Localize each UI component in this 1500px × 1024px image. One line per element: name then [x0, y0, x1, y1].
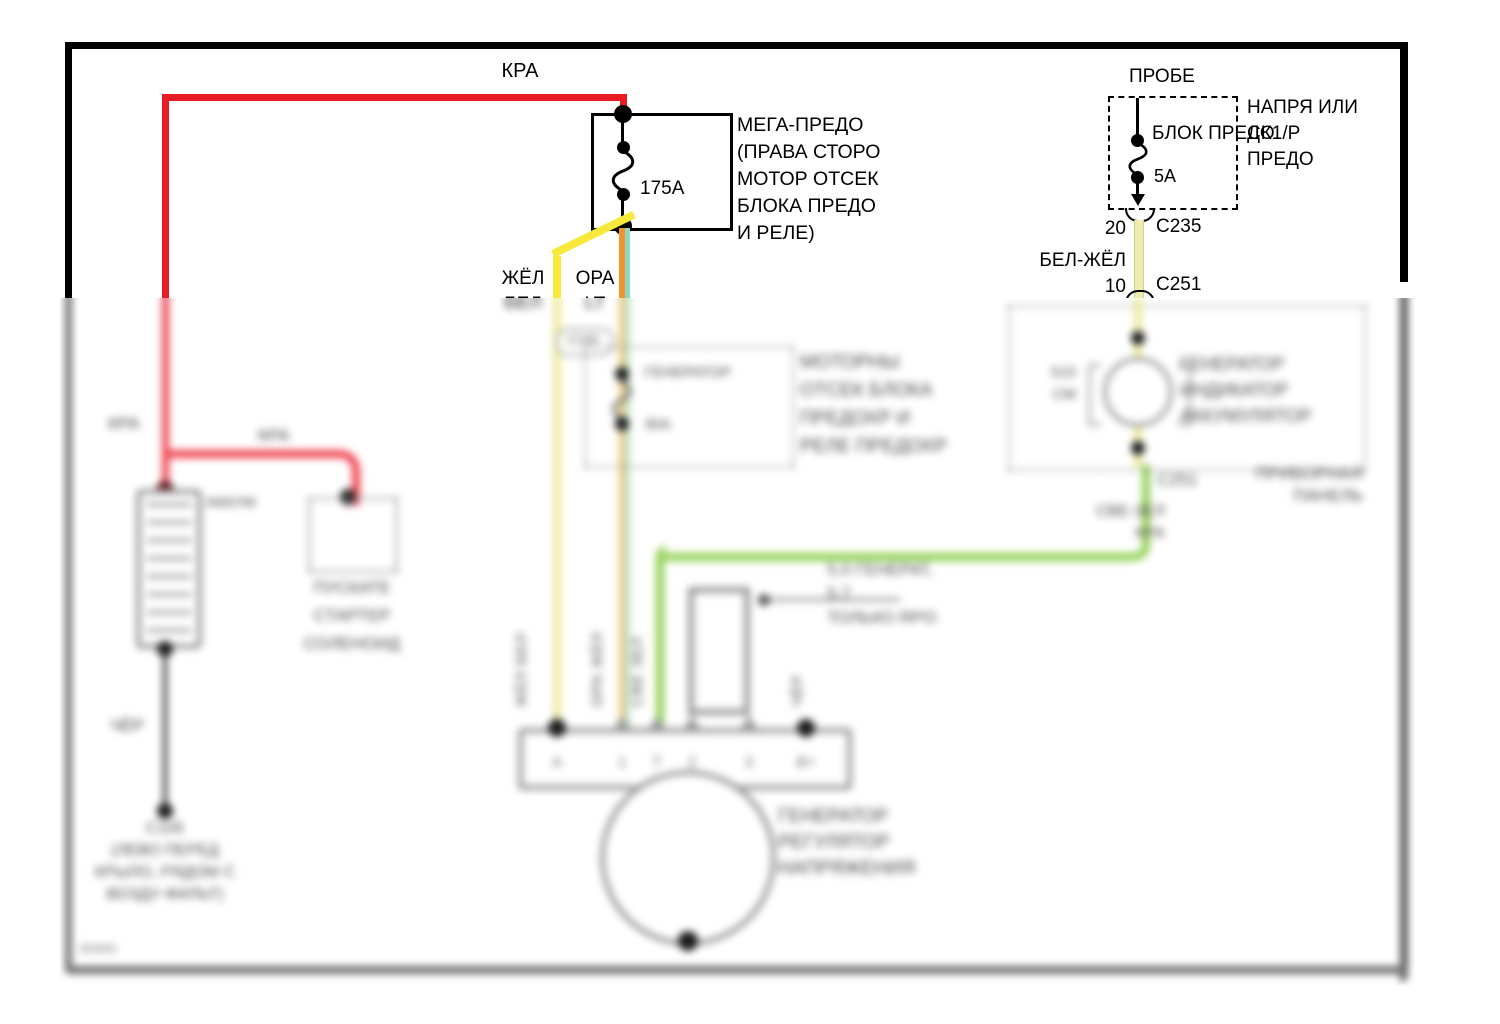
- pin-stub-2: [690, 688, 693, 718]
- mega-fuse-desc-line4: БЛОКА ПРЕДО: [737, 193, 880, 220]
- solenoid-line1: ПУСКАТЕ: [290, 578, 414, 598]
- lamp-bracket-left: [1088, 364, 1101, 426]
- indicator-lamp-circle: [1103, 357, 1173, 427]
- bar-dot-bplus: [797, 719, 815, 737]
- yellow-wire-blurred: [553, 298, 561, 732]
- gen-fuse-dot-top: [615, 367, 629, 381]
- battery-label: АККУМ: [206, 494, 256, 511]
- battery-plates: [147, 502, 191, 636]
- probe-side-note-line2: СК1/Р: [1247, 123, 1300, 145]
- connector-c251-name: С251: [1156, 274, 1201, 296]
- lamp-left-line2: СМ: [1020, 386, 1076, 403]
- gen-fuse-name: ГЕНЕРАТОР: [644, 364, 731, 381]
- pin-stub-3: [747, 688, 750, 718]
- kra-wire-horizontal: [162, 94, 627, 101]
- lamp-right-line3: АККУМУЛЯТОР: [1180, 406, 1311, 427]
- wire-vlabel-4: ЧЁР: [789, 674, 806, 707]
- orange-wire-label-line1: ОРА: [560, 268, 630, 290]
- wire-vlabel-2: ОРА ЖЁЛ: [589, 631, 606, 707]
- probe-side-note-line3: ПРЕДО: [1247, 149, 1314, 171]
- loop-note-line3: ТОЛЬКО RPO: [827, 608, 936, 628]
- kra-label-2: КРА: [258, 426, 289, 446]
- lamp-dot-top: [1131, 331, 1145, 345]
- bar-dot-a: [548, 719, 566, 737]
- panel-connector-label: С251: [1157, 470, 1198, 490]
- black-ground-wire: [163, 649, 167, 809]
- pin-symbol-1: [614, 716, 630, 728]
- mega-fuse-top-junction-dot: [614, 105, 632, 123]
- terminal-bplus: В+: [791, 754, 821, 771]
- probe-title: ПРОБЕ: [1129, 66, 1195, 88]
- terminal-a: А: [542, 754, 572, 771]
- loop-note-line2: 5.7: [827, 584, 851, 604]
- ground-line2: (ЛЕВО ПЕРЕД: [60, 842, 270, 860]
- connector-c235-name: С235: [1156, 216, 1201, 238]
- frame-right-edge: [1400, 42, 1408, 282]
- connector-c235-pin: 20: [1066, 218, 1126, 240]
- lamp-dot-bottom: [1131, 441, 1145, 455]
- loop-callout-dot: [758, 594, 770, 606]
- mega-fuse-description: МЕГА-ПРЕДО (ПРАВА СТОРО МОТОР ОТСЕК БЛОК…: [737, 112, 880, 247]
- yellow-wire-label-line1: ЖЁЛ: [488, 268, 558, 290]
- probe-wire-arrow-icon: [1131, 194, 1145, 206]
- wire-vlabel-3: СВЕ ЗЕЛ: [629, 636, 646, 707]
- instrument-panel-line2: ПАНЕЛЬ: [1203, 486, 1363, 506]
- green-wire-elbow-left: [656, 545, 688, 730]
- gen-fuse-dot-bottom: [615, 417, 629, 431]
- frame-bottom-edge-blurred: [65, 966, 1408, 974]
- pin-symbol-t: [649, 716, 665, 728]
- cher-wire-label: ЧЁР: [110, 716, 144, 736]
- kra-wire-vertical-left: [162, 94, 169, 298]
- solenoid-line3: СОЛЕНОИД: [290, 634, 414, 654]
- bel-zhel-wire: [1134, 220, 1144, 298]
- gen-fuse-note-line4: РЕЛЕ ПРЕДОХР: [800, 436, 947, 458]
- cut-yellow-label: БЕЛ: [488, 298, 558, 314]
- frame-top-edge: [65, 42, 1408, 49]
- probe-fuse-lead-bottom: [1136, 182, 1139, 194]
- solenoid-line2: СТАРТЕР: [290, 606, 414, 626]
- mega-fuse-amp-label: 175А: [640, 178, 684, 200]
- generator-line3: НАПРЯЖЕНИЯ: [778, 858, 915, 880]
- gen-fuse-amp: 30А: [644, 416, 671, 433]
- green-wire-label-line1: СВЕ-ЗЕЛ: [1045, 503, 1165, 521]
- solenoid-dashed-box: [308, 497, 398, 573]
- terminal-t: Т: [642, 754, 672, 771]
- mega-fuse-desc-line2: (ПРАВА СТОРО: [737, 139, 880, 166]
- gen-fuse-note-line1: МОТОРНЫ: [800, 352, 899, 374]
- loop-component: [688, 587, 750, 715]
- instrument-panel-line1: ПРИБОРНАЯ: [1203, 464, 1363, 484]
- green-wire-label-line2: КРА: [1045, 525, 1165, 543]
- mega-fuse-desc-line5: И РЕЛЕ): [737, 220, 880, 247]
- gen-fuse-note-line2: ОТСЕК БЛОКА: [800, 380, 933, 402]
- blurred-lower-panel: БЕЛ LT КРА КРА АККУМ ЧЁР С105 (ЛЕВО ПЕРЕ…: [60, 298, 1415, 986]
- mega-fuse-desc-line1: МЕГА-ПРЕДО: [737, 112, 880, 139]
- ground-line1: С105: [60, 820, 270, 838]
- bel-zhel-wire-label: БЕЛ-ЖЁЛ: [1000, 250, 1126, 272]
- generator-line2: РЕГУЛЯТОР: [778, 832, 889, 854]
- ground-splice-dot: [157, 803, 173, 819]
- gen-fuse-squiggle: [610, 380, 634, 420]
- generator-circle: [600, 770, 776, 946]
- wiring-diagram-page: КРА 175А МЕГА-ПРЕДО (ПРАВА СТОРО МОТОР О…: [0, 0, 1500, 1024]
- generator-line1: ГЕНЕРАТОР: [778, 806, 888, 828]
- loop-note-line1: 5.0 ГЕНЕРАТ,: [827, 560, 933, 580]
- kra-label-1: КРА: [108, 414, 139, 434]
- connector-c251-pin: 10: [1066, 276, 1126, 298]
- gen-fuse-note-line3: ПРЕДОХР И: [800, 408, 910, 430]
- ground-line4: ВОЗДУ-ФИЛЬТ): [60, 886, 270, 904]
- wire-vlabel-1: ЖЁЛ БЕЛ: [513, 632, 530, 707]
- terminal-3: 3: [734, 754, 764, 771]
- terminal-1: 1: [607, 754, 637, 771]
- kra-wire-label: КРА: [480, 60, 560, 83]
- battery-symbol: [136, 489, 202, 649]
- mega-fuse-desc-line3: МОТОР ОТСЕК: [737, 166, 880, 193]
- probe-side-note-line1: НАПРЯ ИЛИ: [1247, 97, 1358, 119]
- ground-line3: КРЫЛО, РЯДОМ С: [60, 864, 270, 882]
- terminal-2: 2: [677, 754, 707, 771]
- generator-bottom-dot: [678, 931, 698, 951]
- lamp-right-line2: ИНДИКАТОР: [1180, 380, 1288, 401]
- corner-code: 60000: [80, 942, 116, 957]
- blurred-diagram-content: БЕЛ LT КРА КРА АККУМ ЧЁР С105 (ЛЕВО ПЕРЕ…: [60, 298, 1415, 986]
- probe-fuse-amp-label: 5А: [1154, 166, 1176, 187]
- frame-left-edge: [65, 42, 72, 298]
- lamp-right-line1: ГЕНЕРАТОР: [1180, 354, 1284, 375]
- frame-right-edge-blurred: [1400, 298, 1408, 982]
- mega-fuse-element-squiggle: [609, 150, 637, 192]
- lamp-left-line1: 515: [1020, 364, 1076, 381]
